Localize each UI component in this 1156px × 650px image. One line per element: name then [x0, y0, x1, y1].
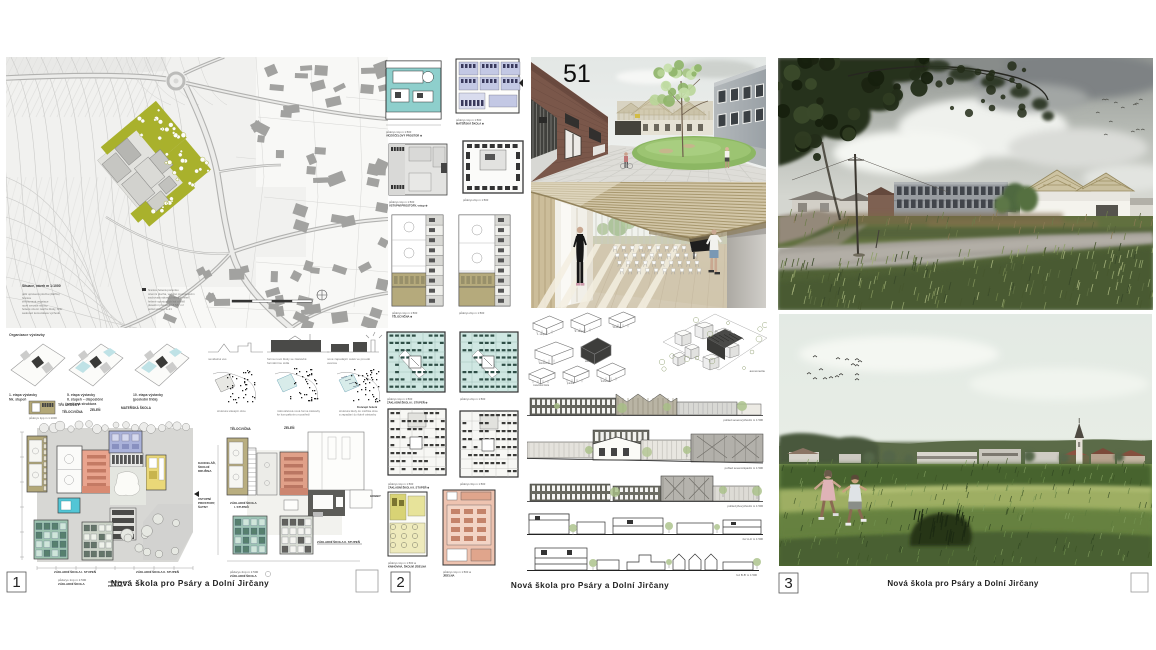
svg-text:2. stupeň: 2. stupeň: [575, 330, 586, 333]
svg-text:půdorys 3np m 1:500: půdorys 3np m 1:500: [460, 482, 486, 486]
svg-text:půdorys 2np m 1:500: půdorys 2np m 1:500: [459, 311, 485, 315]
svg-text:Nová škola pro Psáry a Dolní J: Nová škola pro Psáry a Dolní Jirčany: [887, 579, 1039, 588]
svg-text:tělocvična: tělocvična: [539, 362, 550, 365]
svg-text:knihovna: knihovna: [601, 380, 611, 383]
svg-text:pohled jihovýchodní m 1:500: pohled jihovýchodní m 1:500: [727, 504, 763, 508]
svg-text:pohled severovýchodní m 1:500: pohled severovýchodní m 1:500: [723, 418, 763, 422]
svg-text:půdorys 2np m 1:500: půdorys 2np m 1:500: [463, 198, 489, 202]
svg-text:půdorys 1pp m 1:1000: půdorys 1pp m 1:1000: [29, 416, 57, 420]
svg-text:aula: aula: [585, 360, 590, 363]
svg-text:ZELEŇ: ZELEŇ: [90, 407, 101, 412]
svg-text:1. stupeň: 1. stupeň: [537, 333, 548, 336]
svg-text:vesnice: vesnice: [327, 361, 338, 365]
svg-text:HOBBY: HOBBY: [370, 494, 381, 498]
svg-text:formálnímu sídla: formálnímu sídla: [267, 361, 290, 365]
svg-text:3: 3: [784, 575, 792, 592]
svg-text:Nová škola pro Psáry a Dolní J: Nová škola pro Psáry a Dolní Jirčany: [111, 579, 269, 588]
svg-text:I. STUPEŇ: I. STUPEŇ: [234, 504, 249, 509]
svg-text:ŠATNY: ŠATNY: [198, 504, 208, 509]
svg-text:půdorys 1np m 1:500: půdorys 1np m 1:500: [386, 130, 412, 134]
svg-text:ZELEŇ: ZELEŇ: [284, 425, 295, 430]
svg-text:půdorys 2np m 1:500: půdorys 2np m 1:500: [460, 397, 486, 401]
svg-text:axonometrie: axonometrie: [750, 369, 766, 373]
svg-text:Nová škola pro Psáry a Dolní J: Nová škola pro Psáry a Dolní Jirčany: [511, 581, 669, 590]
svg-text:ZÁKLADNÍ ŠKOLA II. STUPEŇ: ZÁKLADNÍ ŠKOLA II. STUPEŇ: [317, 539, 360, 544]
svg-text:TŘI ŠKOLKY: TŘI ŠKOLKY: [58, 402, 80, 407]
svg-text:půdorys 1np m 1:500: půdorys 1np m 1:500: [387, 397, 413, 401]
svg-text:půdorys 1np m 1:500: půdorys 1np m 1:500: [456, 118, 482, 122]
svg-text:TĚLOCVIČNA: TĚLOCVIČNA: [230, 426, 251, 431]
svg-text:půdorys 1np m 1:500: půdorys 1np m 1:500: [388, 482, 414, 486]
svg-text:MATEŘSKÁ ŠKOLA: MATEŘSKÁ ŠKOLA: [121, 405, 152, 410]
svg-text:řez A-A’ m 1:500: řez A-A’ m 1:500: [743, 537, 764, 541]
svg-text:1: 1: [12, 574, 20, 591]
svg-text:Organizace výstavby: Organizace výstavby: [9, 333, 45, 337]
svg-text:2: 2: [396, 574, 404, 591]
svg-text:družina: družina: [613, 326, 622, 329]
svg-text:sadovací komunikace východu: sadovací komunikace východu: [22, 311, 61, 315]
svg-text:Situace, návrh m 1:1000: Situace, návrh m 1:1000: [22, 284, 61, 288]
svg-text:půdorys 1np m 1:500: půdorys 1np m 1:500: [392, 311, 418, 315]
svg-text:počet učeben 2+21: počet učeben 2+21: [148, 307, 172, 311]
svg-text:51: 51: [563, 60, 591, 88]
svg-text:pohled severozápadní m 1:500: pohled severozápadní m 1:500: [725, 466, 764, 470]
svg-text:mateřská škola: mateřská škola: [533, 384, 550, 387]
svg-text:nevidatná ves: nevidatná ves: [208, 357, 227, 361]
svg-text:půdorys 1np m 1:500: půdorys 1np m 1:500: [389, 200, 415, 204]
svg-text:jídelna: jídelna: [566, 382, 575, 385]
svg-text:TĚLOCVIČNA: TĚLOCVIČNA: [62, 409, 83, 414]
